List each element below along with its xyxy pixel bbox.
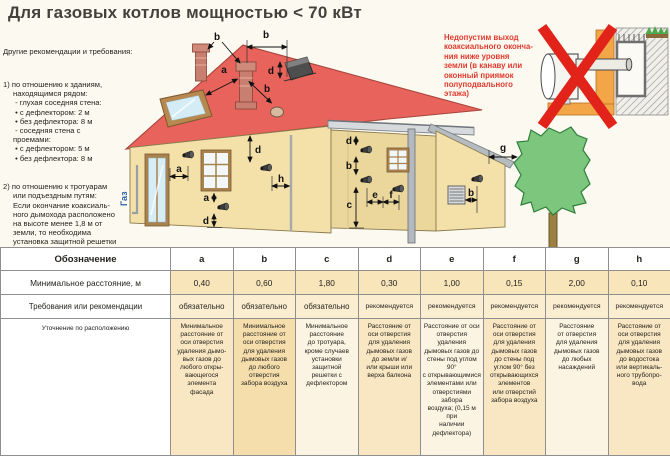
dim-label-b: b (264, 84, 270, 95)
clarification-c: Минимальное расстояние до тротуара, кром… (296, 319, 359, 456)
requirement-h: рекомендуется (608, 295, 670, 319)
row-clarification: Уточнение по расположению Минимальное ра… (1, 319, 670, 456)
requirement-e: рекомендуется (421, 295, 484, 319)
distance-b: 0,60 (233, 271, 296, 295)
clarification-d: Расстояние от оси отверстия для удаления… (358, 319, 421, 456)
dim-label-d: d (268, 66, 274, 77)
clarification-e: Расстояние от оси отверстия удаления дым… (421, 319, 484, 456)
row-designation: Обозначение a b c d e f g h (1, 248, 670, 271)
distance-d: 0,30 (358, 271, 421, 295)
distance-g: 2,00 (546, 271, 609, 295)
row-requirement: Требования или рекомендации обязательно … (1, 295, 670, 319)
col-letter-e: e (421, 248, 484, 271)
clarification-g: Расстояние от отверстия для удаления дым… (546, 319, 609, 456)
boiler-end (541, 54, 555, 99)
glass-door (145, 154, 169, 226)
dim-label-a: a (203, 193, 209, 204)
distance-e: 1,00 (421, 271, 484, 295)
infographic-page: Для газовых котлов мощностью < 70 кВт Др… (0, 0, 670, 456)
requirement-b: обязательно (233, 295, 296, 319)
dim-label-b: b (263, 30, 269, 41)
clarification-h: Расстояние от оси отверстия для удаления… (608, 319, 670, 456)
row-distance: Минимальное расстояние, м 0,40 0,60 1,80… (1, 271, 670, 295)
clarification-a: Минимальное расстояние от оси отверстия … (171, 319, 234, 456)
col-letter-f: f (483, 248, 546, 271)
dim-label-b: b (214, 32, 220, 43)
dim-label-d: d (346, 136, 352, 147)
requirement-g: рекомендуется (546, 295, 609, 319)
dim-label-c: c (346, 200, 352, 211)
house-illustration: Газ (119, 44, 514, 243)
porch-window (387, 148, 409, 172)
col-letter-d: d (358, 248, 421, 271)
requirement-d: рекомендуется (358, 295, 421, 319)
col-letter-a: a (171, 248, 234, 271)
roof-terminal-icon (271, 107, 284, 117)
house-diagram: Газ b b a b d a d h a (0, 0, 670, 250)
col-letter-g: g (546, 248, 609, 271)
clarification-b: Минимальное расстояние от оси отверстия … (233, 319, 296, 456)
chimney-icon (193, 44, 210, 81)
requirement-a: обязательно (171, 295, 234, 319)
porch-post (408, 129, 415, 243)
gas-label: Газ (119, 191, 129, 206)
col-letter-b: b (233, 248, 296, 271)
row-label-requirement: Требования или рекомендации (1, 295, 171, 319)
dim-label-b: b (468, 188, 474, 199)
dim-label-a: a (176, 164, 182, 175)
dim-label-d: d (255, 145, 261, 156)
dim-label-e: e (372, 190, 378, 201)
dim-label-a: a (221, 65, 227, 76)
distance-c: 1,80 (296, 271, 359, 295)
row-label-distance: Минимальное расстояние, м (1, 271, 171, 295)
requirement-f: рекомендуется (483, 295, 546, 319)
dim-label-d: d (203, 216, 209, 227)
dim-label-h: h (278, 174, 284, 185)
row-label-designation: Обозначение (1, 248, 171, 271)
distance-f: 0,15 (483, 271, 546, 295)
distance-h: 0,10 (608, 271, 670, 295)
dim-label-b: b (346, 161, 352, 172)
distance-table: Обозначение a b c d e f g h Минимальное … (0, 247, 670, 456)
topsoil (646, 34, 668, 38)
window (201, 150, 231, 191)
row-label-clarification: Уточнение по расположению (1, 319, 171, 456)
requirement-c: обязательно (296, 295, 359, 319)
louver-grille-icon (448, 186, 465, 204)
col-letter-c: c (296, 248, 359, 271)
clarification-f: Расстояние от оси отверстия для удаления… (483, 319, 546, 456)
dim-label-g: g (500, 143, 506, 154)
tree-icon (514, 127, 590, 248)
pipe-terminal (626, 59, 632, 71)
col-letter-h: h (608, 248, 670, 271)
distance-a: 0,40 (171, 271, 234, 295)
forbidden-diagram (541, 26, 668, 126)
